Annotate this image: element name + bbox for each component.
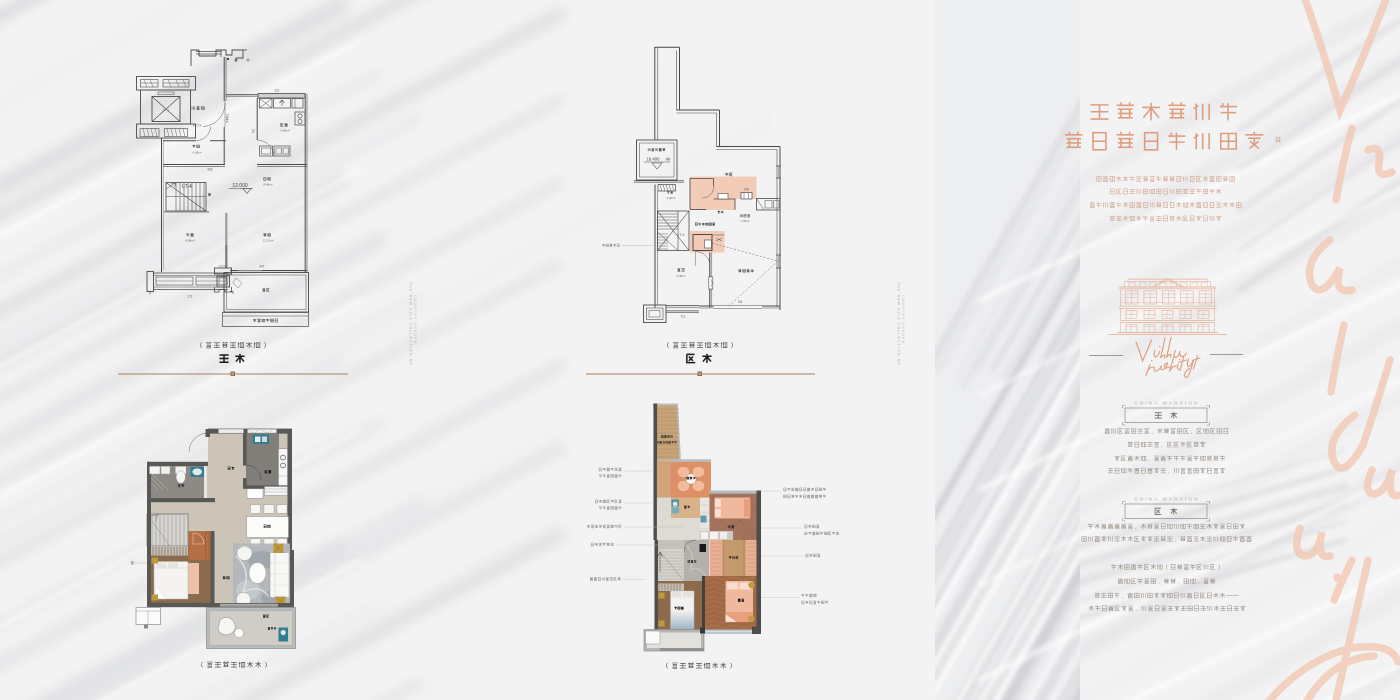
svg-text:8.48m²: 8.48m² (263, 183, 272, 187)
svg-text:FC7J: FC7J (193, 124, 202, 128)
svg-text:LT-4: LT-4 (678, 233, 685, 237)
svg-text:(鯆): (鯆) (666, 156, 671, 161)
svg-text:THE NEW ASIA COLLECTION OF: THE NEW ASIA COLLECTION OF (897, 282, 901, 366)
svg-text:4.86m²: 4.86m² (280, 129, 289, 133)
svg-text:FM51: FM51 (226, 114, 230, 123)
svg-text:M3: M3 (208, 168, 213, 172)
svg-text:3.40m²: 3.40m² (667, 196, 676, 200)
svg-text:LT-4: LT-4 (182, 184, 192, 190)
svg-text:D6: D6 (744, 188, 748, 192)
svg-text:4.05m²: 4.05m² (192, 151, 201, 155)
svg-text:8.48m²: 8.48m² (185, 239, 194, 243)
svg-text:12.000: 12.000 (232, 183, 248, 189)
svg-text:DT-1: DT-1 (163, 108, 170, 112)
svg-text:12.15m²: 12.15m² (262, 239, 273, 243)
svg-text:7.06m²: 7.06m² (741, 219, 750, 223)
svg-text:16.400: 16.400 (647, 157, 660, 162)
svg-text:COUNTRY GARDEN: COUNTRY GARDEN (901, 295, 905, 344)
svg-text:C2: C2 (275, 89, 280, 93)
svg-text:V2: V2 (252, 129, 256, 133)
svg-text:CHINA MANSION: CHINA MANSION (1134, 401, 1199, 406)
svg-text:THE NEW ASIA COLLECTION OF: THE NEW ASIA COLLECTION OF (409, 282, 413, 366)
svg-text:COUNTRY GARDEN: COUNTRY GARDEN (413, 295, 417, 344)
svg-text:CHINA MANSION: CHINA MANSION (1134, 497, 1199, 502)
